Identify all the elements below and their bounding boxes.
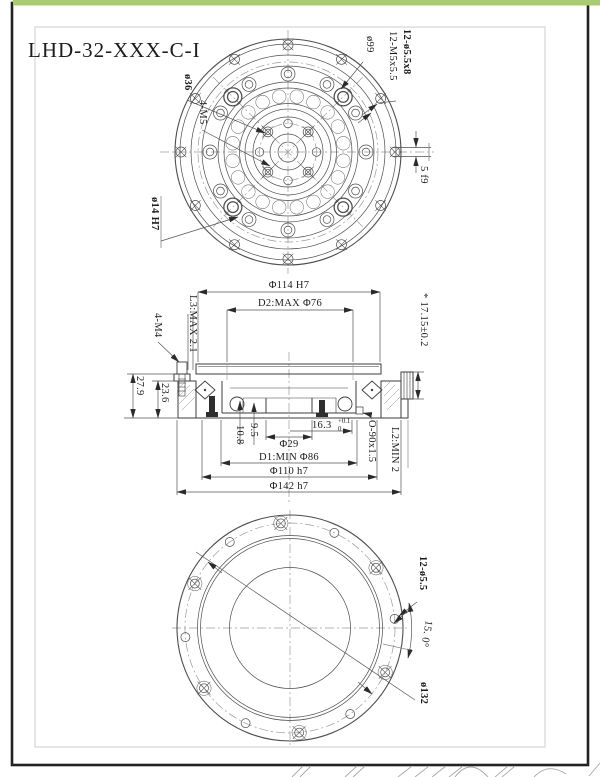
m4-bolt-head [177, 362, 187, 374]
dim-dia29: Φ29 [279, 439, 298, 450]
dim-dia110: Φ110 h7 [270, 466, 308, 477]
part-number-title: LHD-32-XXX-C-I [28, 38, 201, 62]
dim-l3-max: L3:MAX 2.1 [187, 295, 198, 353]
label-dia14-h7: ø14 H7 [149, 197, 160, 231]
sheet-frame [12, 0, 600, 765]
dim-4-m4: 4-M4 [152, 313, 163, 338]
drawing-sheet: LHD-32-XXX-C-I [0, 0, 600, 777]
dim-l2-min: L2:MIN 2 [389, 427, 400, 472]
dim-height-17.15: * 17.15±0.2 [418, 293, 429, 347]
top-view: ø99 12-ø5.5x8 12-M5x5.5 ø36 4-M5 ø14 H7 … [149, 29, 434, 274]
label-15deg: 15. 0° [418, 619, 434, 647]
dim-d1-min: D1:MIN Φ86 [259, 452, 319, 463]
label-12-dia5.5: 12-ø5.5 [417, 556, 428, 590]
inner-border [35, 27, 545, 747]
dim-o-ring: O-90x1.5 [366, 420, 377, 462]
dim-9.5: 9.5 [248, 423, 259, 437]
green-top-bar [13, 0, 600, 6]
dim-27.9: 27.9 [134, 376, 145, 396]
dim-16.3-tol-lower: 0 [338, 426, 342, 433]
label-12-m5x5.5: 12-M5x5.5 [387, 31, 398, 81]
label-12-dia5.5x8: 12-ø5.5x8 [401, 29, 412, 75]
section-details [177, 362, 400, 417]
label-dia132: ø132 [418, 682, 429, 704]
bottom-view-centerlines [172, 510, 408, 748]
label-dia99: ø99 [364, 36, 375, 53]
label-4-m5: 4-M5 [197, 100, 208, 125]
dim-23.6: 23.6 [159, 383, 170, 403]
section-view: Φ114 H7 D2:MAX Φ76 * 17.15±0.2 L3:MAX 2.… [124, 280, 429, 503]
dim-dia142: Φ142 h7 [270, 481, 309, 492]
engineering-drawing: LHD-32-XXX-C-I [0, 0, 600, 777]
label-dia36: ø36 [182, 74, 193, 91]
dim-16.3: 16.3 [312, 420, 332, 431]
dim-16.3-tol-upper: +0.1 [338, 418, 350, 425]
dim-d2-max: D2:MAX Φ76 [258, 298, 322, 309]
bottom-view-leaders [196, 552, 417, 700]
dim-dia114: Φ114 H7 [269, 280, 310, 291]
bottom-bolts [206, 396, 328, 417]
dim-10.8: 10.8 [234, 425, 245, 445]
label-5-f9: 5 f9 [418, 166, 429, 184]
bottom-view: 12-ø5.5 15. 0° ø132 [172, 510, 434, 748]
